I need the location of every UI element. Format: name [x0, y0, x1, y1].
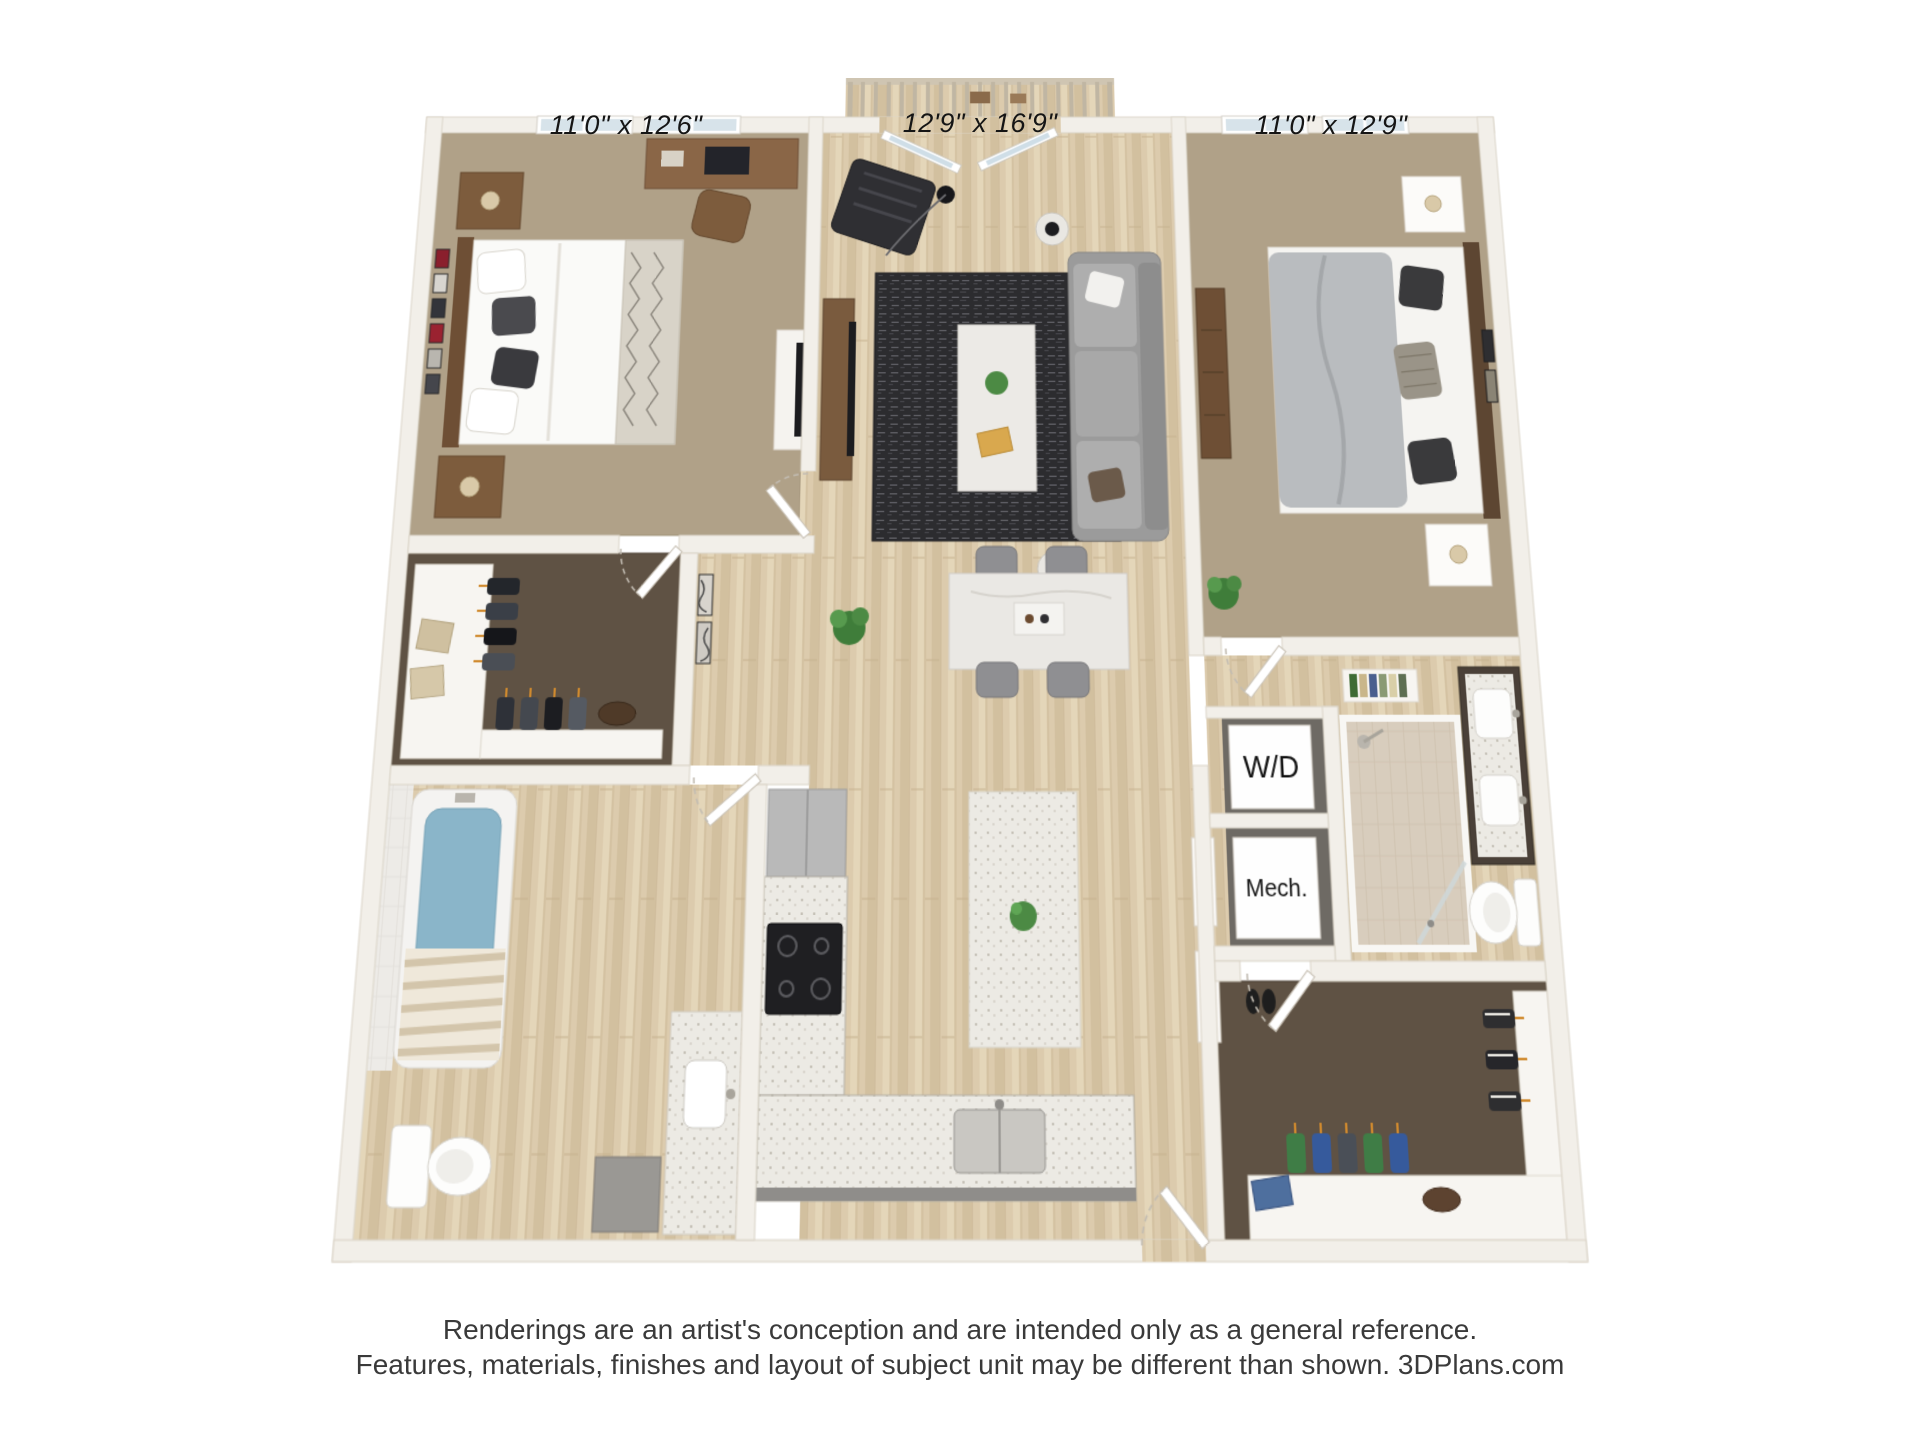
counter: [756, 1095, 1137, 1201]
plant: [985, 371, 1008, 394]
cabinet-front: [756, 1188, 1137, 1201]
storage-box: [416, 619, 454, 653]
pillow: [465, 388, 520, 435]
sink: [1479, 775, 1521, 825]
disclaimer-line1: Renderings are an artist's conception an…: [0, 1312, 1920, 1347]
dark-pillow: [492, 296, 536, 337]
gray-duvet: [1268, 252, 1408, 507]
dark-pillow: [490, 346, 540, 389]
balcony-table: [1010, 94, 1026, 104]
bag: [1422, 1188, 1461, 1212]
sink: [1473, 689, 1514, 738]
pillow: [477, 249, 526, 295]
laptop: [704, 147, 750, 175]
marble-top: [958, 325, 1037, 491]
kitchen-sink: [954, 1099, 1045, 1173]
balcony-chair: [970, 92, 990, 104]
dimension-label-living: 12'9" x 16'9": [903, 108, 1058, 139]
table-tray: [1014, 603, 1064, 635]
shower-curtain: [397, 949, 505, 1061]
floor-plan-3d: W/D Mech.: [306, 78, 1614, 1289]
floor-plan-page: W/D Mech.: [0, 0, 1920, 1440]
disclaimer: Renderings are an artist's conception an…: [0, 1312, 1920, 1382]
dresser: [1195, 288, 1231, 458]
kitchen-island: [969, 792, 1081, 1048]
dimension-label-bedroom2: 11'0" x 12'9": [1255, 110, 1408, 141]
bed: [1268, 242, 1501, 518]
desk-papers: [661, 151, 684, 167]
vanity: [663, 1012, 743, 1235]
coffee-table: [958, 325, 1037, 491]
folded-jeans: [1251, 1175, 1293, 1210]
wd-label: W/D: [1243, 751, 1300, 785]
bed: [442, 237, 684, 447]
brown-pillow: [1087, 467, 1126, 503]
bag: [598, 702, 637, 725]
mech-label: Mech.: [1245, 875, 1308, 902]
bookshelf: [1342, 669, 1418, 702]
tub-water: [415, 809, 503, 969]
bathtub: [392, 789, 518, 1068]
disclaimer-line2: Features, materials, finishes and layout…: [0, 1347, 1920, 1382]
cabinet: [592, 1157, 661, 1232]
dining-chair: [1047, 662, 1089, 697]
closet-shelf: [1248, 1176, 1567, 1240]
tub-faucet: [455, 793, 476, 803]
closet-shelf: [480, 730, 663, 758]
stove: [765, 924, 842, 1015]
dark-pillow: [1398, 264, 1444, 311]
shower: [1343, 718, 1474, 948]
storage-box: [410, 665, 444, 699]
faucet: [995, 1099, 1004, 1109]
dimension-label-bedroom1: 11'0" x 12'6": [550, 110, 703, 141]
dining-chair: [976, 662, 1018, 697]
sofa: [1068, 252, 1169, 541]
sink: [683, 1060, 727, 1128]
dark-pillow: [1406, 437, 1458, 486]
